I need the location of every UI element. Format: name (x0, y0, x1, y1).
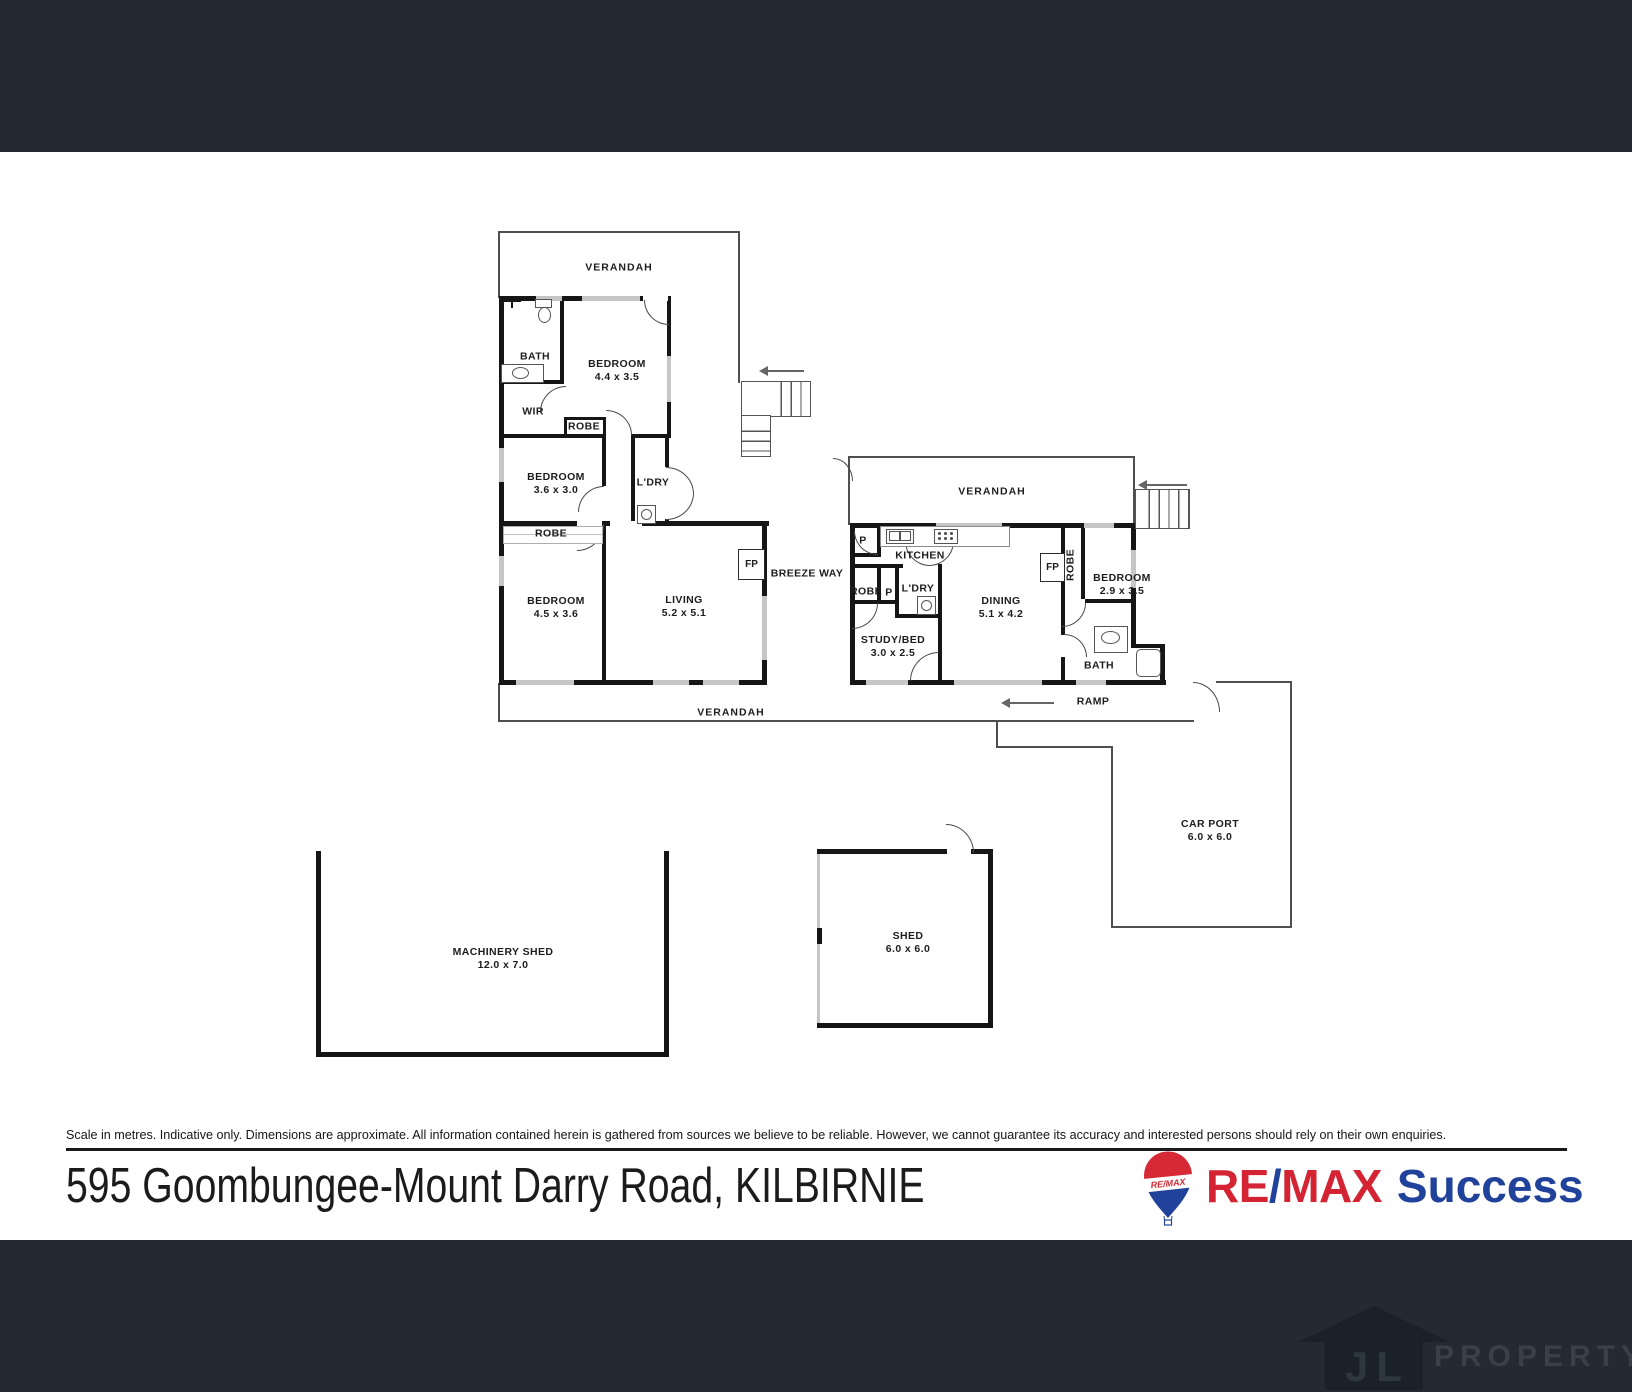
carport-outline (1111, 926, 1292, 928)
room-label-bedroom2: BEDROOM3.6 x 3.0 (527, 471, 585, 497)
room-label-pantry1: P (859, 534, 866, 547)
room-label-laundry-right: L'DRY (902, 582, 935, 595)
wall-segment (499, 296, 504, 685)
stairs-direction-arrow (1147, 484, 1187, 486)
room-label-study: STUDY/BED3.0 x 2.5 (861, 634, 925, 660)
wall-segment (1081, 527, 1085, 603)
brand-office-name: Success (1397, 1160, 1584, 1212)
window (1076, 680, 1106, 685)
room-name: BEDROOM (527, 595, 585, 607)
wall-segment (895, 564, 899, 618)
brand-re: RE (1206, 1160, 1269, 1212)
room-label-robe3: ROBE (850, 585, 882, 598)
wall-segment (1061, 657, 1065, 685)
burner (938, 532, 941, 535)
verandah-outline (848, 456, 1135, 458)
room-label-pantry2: P (885, 586, 892, 599)
stair-treads (772, 382, 810, 416)
divider-rule (66, 1148, 1567, 1151)
room-label-verandah-right: VERANDAH (958, 485, 1026, 498)
window (499, 556, 504, 586)
room-dims: 4.5 x 3.6 (527, 608, 585, 621)
washer-icon (921, 600, 932, 611)
room-label-bedroom1: BEDROOM4.4 x 3.5 (588, 358, 646, 384)
room-label-carport: CAR PORT6.0 x 6.0 (1181, 818, 1239, 844)
room-label-verandah-bottom: VERANDAH (697, 706, 765, 719)
room-label-breezeway: BREEZE WAY (771, 567, 843, 580)
room-dims: 12.0 x 7.0 (453, 959, 554, 972)
door-arc (946, 824, 974, 853)
room-dims: 2.9 x 3.5 (1093, 585, 1151, 598)
room-label-kitchen: KITCHEN (895, 549, 944, 562)
window (499, 448, 504, 482)
room-label-shed: SHED6.0 x 6.0 (886, 930, 930, 956)
door-arc (666, 467, 694, 494)
jl-property-house-icon: JL (1298, 1304, 1450, 1390)
door-arc (666, 493, 694, 520)
verandah-outline (498, 683, 500, 722)
verandah-outline (498, 231, 500, 298)
jl-initials: JL (1345, 1343, 1410, 1390)
basin-icon (512, 367, 529, 379)
window (1084, 523, 1114, 528)
room-dims: 3.6 x 3.0 (527, 484, 585, 497)
stairs-left (741, 381, 811, 417)
machinery-shed-wall (664, 851, 669, 1057)
door-arc (833, 458, 853, 481)
room-label-living: LIVING5.2 x 5.1 (662, 594, 706, 620)
room-label-machinery-shed: MACHINERY SHED12.0 x 7.0 (453, 946, 554, 972)
wall-segment (631, 437, 635, 524)
stairs-direction-arrow (768, 370, 804, 372)
wall-segment (602, 434, 606, 486)
shower-icon (511, 302, 513, 308)
room-name: DINING (981, 595, 1020, 607)
room-name: STUDY/BED (861, 634, 925, 646)
window (667, 356, 671, 402)
burner (950, 537, 953, 540)
shed-wall (817, 849, 947, 854)
room-label-laundry-left: L'DRY (637, 476, 670, 489)
stair-treads (1140, 490, 1189, 528)
room-name: BEDROOM (588, 358, 646, 370)
carport-outline (1290, 681, 1292, 928)
door-arc (1193, 682, 1220, 712)
ramp-step-line (996, 720, 998, 748)
fireplace-left: FP (738, 549, 765, 580)
property-watermark-text: PROPERTY (1434, 1342, 1632, 1372)
window (653, 680, 689, 685)
wall-segment (938, 564, 942, 618)
room-label-dining: DINING5.1 x 4.2 (979, 595, 1023, 621)
top-banner (0, 0, 1632, 152)
room-name: BEDROOM (1093, 572, 1151, 584)
door-arc (852, 603, 878, 629)
sink-bowl (900, 531, 911, 541)
shed-wall (817, 1023, 993, 1028)
door-arc (1062, 603, 1086, 627)
sink-bowl (889, 531, 900, 541)
room-label-bath-right: BATH (1084, 659, 1114, 672)
room-label-bath-left: BATH (520, 350, 550, 363)
room-label-verandah-top: VERANDAH (585, 261, 653, 274)
disclaimer-text: Scale in metres. Indicative only. Dimens… (66, 1127, 1446, 1143)
room-label-robe4: ROBE (1064, 549, 1077, 581)
verandah-outline (738, 231, 740, 383)
brand-max: MAX (1281, 1160, 1382, 1212)
carport-outline (1216, 681, 1292, 683)
toilet-icon (538, 307, 551, 323)
shed-wall (817, 928, 822, 944)
wall-segment (602, 521, 606, 685)
verandah-outline (498, 231, 740, 233)
door-arc (644, 300, 669, 325)
burner (944, 532, 947, 535)
room-dims: 6.0 x 6.0 (1181, 831, 1239, 844)
room-name: MACHINERY SHED (453, 946, 554, 958)
ramp-step-line (996, 746, 1113, 748)
room-label-robe1: ROBE (568, 420, 600, 433)
window (703, 680, 739, 685)
room-dims: 4.4 x 3.5 (588, 371, 646, 384)
wall-segment (560, 296, 564, 384)
door-arc (606, 410, 632, 435)
wall-segment (499, 434, 671, 438)
carport-outline (1111, 746, 1113, 928)
burner (950, 532, 953, 535)
room-label-wir: WIR (522, 405, 544, 418)
basin-icon (1101, 631, 1120, 644)
window (866, 680, 908, 685)
stairs-left-lower (741, 415, 771, 457)
room-name: CAR PORT (1181, 818, 1239, 830)
room-label-bedroom4: BEDROOM2.9 x 3.5 (1093, 572, 1151, 598)
shed-wall (988, 849, 993, 1028)
machinery-shed-wall (316, 1052, 669, 1057)
room-label-robe2: ROBE (535, 527, 567, 540)
verandah-outline (498, 720, 1194, 722)
room-dims: 6.0 x 6.0 (886, 943, 930, 956)
room-dims: 5.2 x 5.1 (662, 607, 706, 620)
fireplace-right: FP (1040, 553, 1065, 582)
room-name: LIVING (665, 594, 702, 606)
room-label-bedroom3: BEDROOM4.5 x 3.6 (527, 595, 585, 621)
window (762, 596, 767, 660)
floorplan-flyer: FP FP VERANDAH BATH BEDROOM4.4 x 3.5 WIR… (0, 0, 1632, 1392)
stair-treads (742, 422, 770, 456)
burner (938, 537, 941, 540)
stairs-right (1135, 489, 1190, 529)
room-name: BEDROOM (527, 471, 585, 483)
room-dims: 3.0 x 2.5 (861, 647, 925, 660)
ramp-direction-arrow (1010, 702, 1054, 704)
room-label-ramp: RAMP (1077, 695, 1110, 708)
door-arc (1064, 634, 1087, 657)
remax-balloon-icon: RE/MAX (1141, 1150, 1195, 1228)
shower-tray-icon (1136, 649, 1161, 677)
brand-slash: / (1269, 1160, 1281, 1212)
washer-icon (641, 509, 652, 520)
property-address: 595 Goombungee-Mount Darry Road, KILBIRN… (66, 1160, 924, 1214)
window (582, 296, 640, 301)
window (954, 680, 1042, 685)
remax-office-wordmark: RE/MAXSuccess (1206, 1163, 1584, 1209)
room-name: SHED (893, 930, 924, 942)
burner (944, 537, 947, 540)
window (516, 680, 574, 685)
cooktop-icon (934, 529, 958, 544)
room-dims: 5.1 x 4.2 (979, 608, 1023, 621)
machinery-shed-wall (316, 851, 321, 1057)
wall-segment (665, 437, 669, 467)
